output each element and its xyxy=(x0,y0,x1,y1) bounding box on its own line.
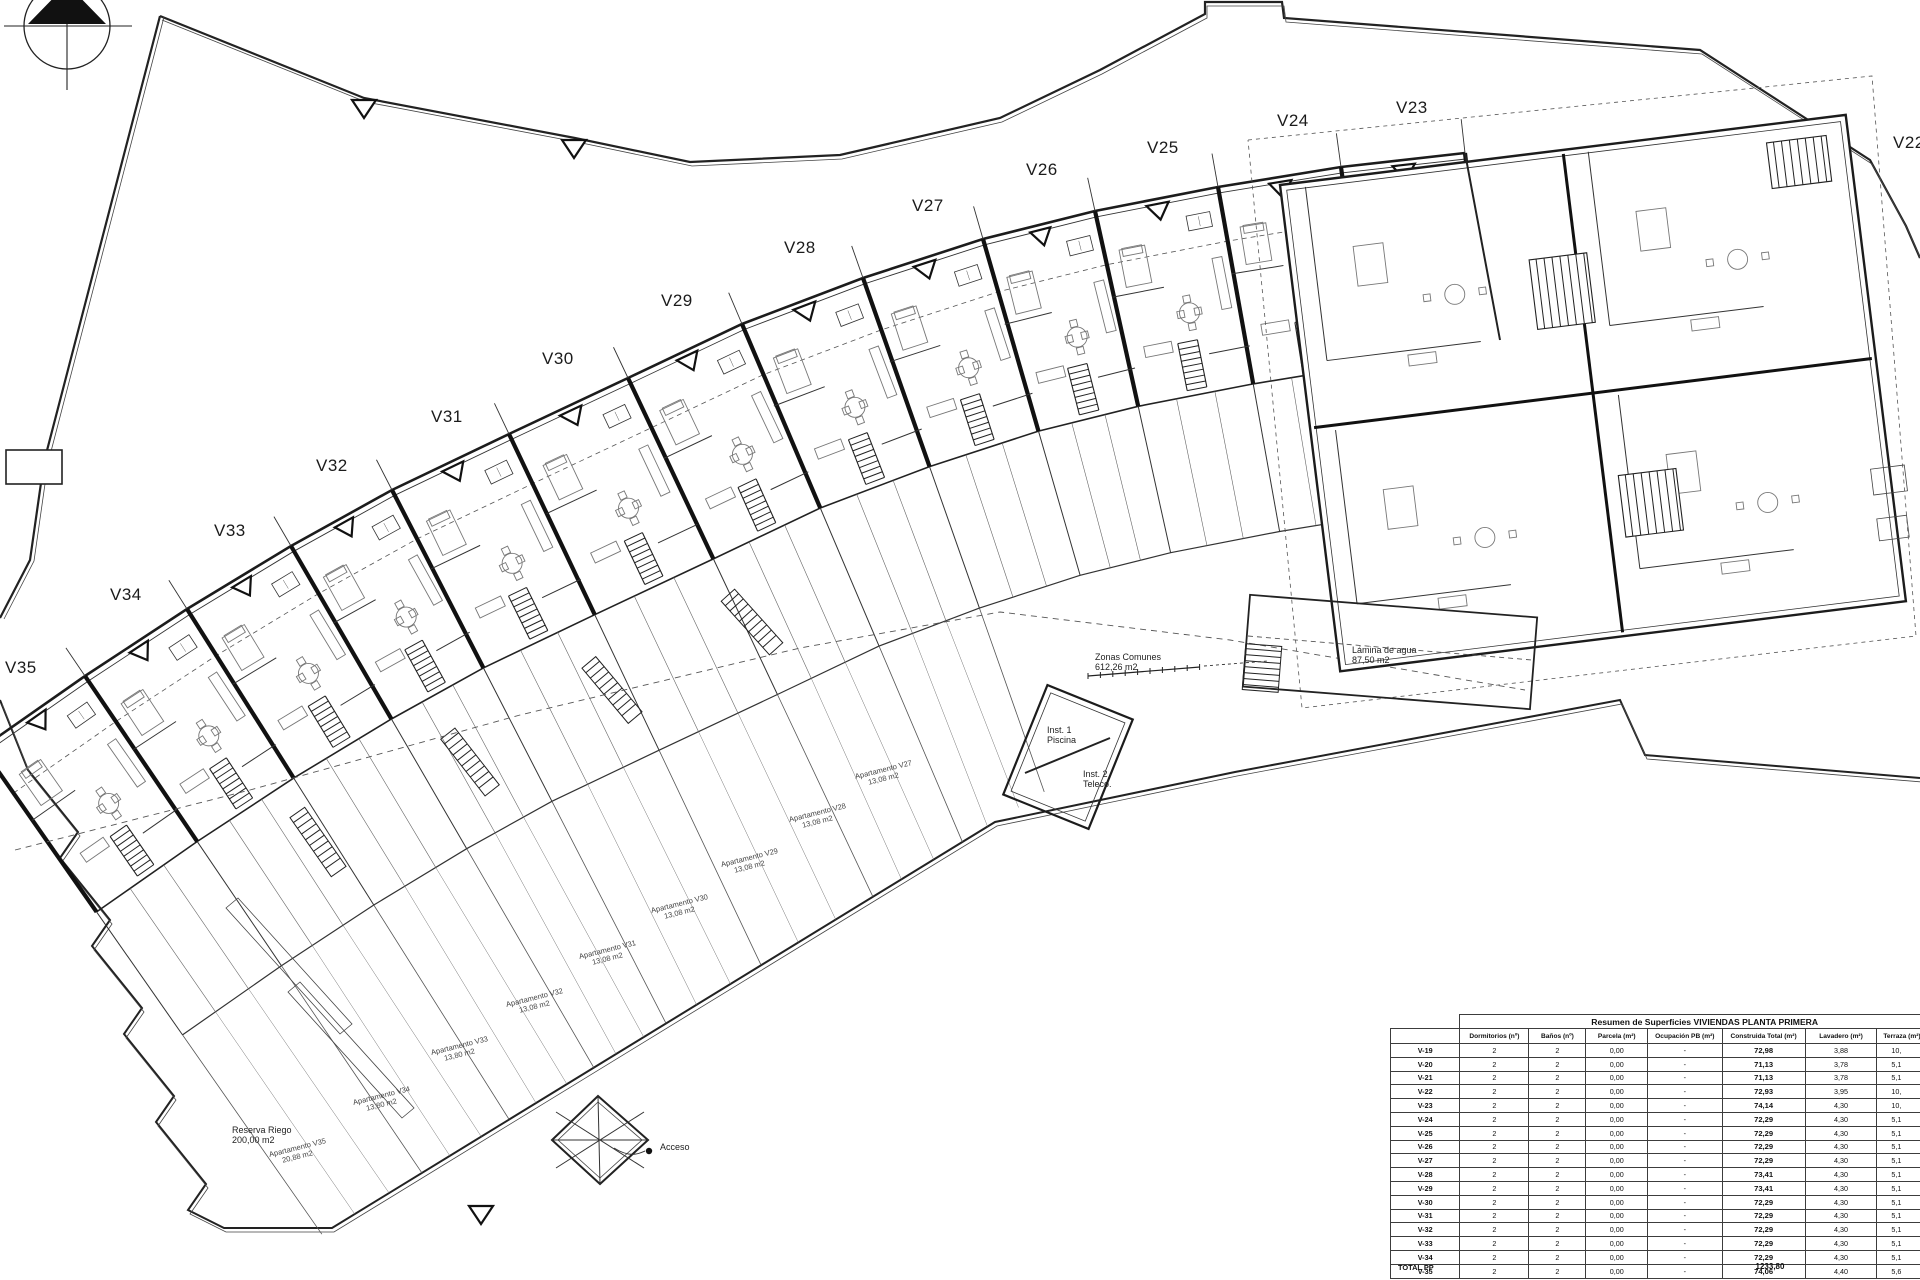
table-cell: 2 xyxy=(1460,1126,1529,1140)
table-cell: - xyxy=(1648,1264,1722,1278)
table-cell: 2 xyxy=(1529,1085,1586,1099)
table-cell: 4,30 xyxy=(1805,1250,1877,1264)
table-cell: - xyxy=(1648,1223,1722,1237)
table-cell: 0,00 xyxy=(1586,1264,1648,1278)
stairs-hatch xyxy=(1618,469,1683,538)
column-header: Baños (nº) xyxy=(1529,1029,1586,1044)
table-row: V-25220,00-72,294,305,1 xyxy=(1391,1126,1920,1140)
table-cell: - xyxy=(1648,1195,1722,1209)
column-header: Parcela (m²) xyxy=(1586,1029,1648,1044)
table-cell: 5,1 xyxy=(1877,1181,1920,1195)
table-cell: 2 xyxy=(1460,1112,1529,1126)
meter-boxes xyxy=(67,177,1456,728)
table-cell: - xyxy=(1648,1099,1722,1113)
table-cell: 2 xyxy=(1460,1250,1529,1264)
table-cell: 71,13 xyxy=(1722,1071,1805,1085)
pool-steps-hatch xyxy=(1242,644,1281,693)
facade-markers xyxy=(27,164,1415,730)
annotation-inst-1-piscina: Inst. 1 xyxy=(1047,725,1072,735)
table-cell: V-27 xyxy=(1391,1154,1460,1168)
table-cell: 3,78 xyxy=(1805,1071,1877,1085)
table-cell: 0,00 xyxy=(1586,1223,1648,1237)
table-cell: 10, xyxy=(1877,1085,1920,1099)
north-arrow xyxy=(28,0,106,24)
table-row: V-20220,00-71,133,785,1 xyxy=(1391,1057,1920,1071)
ramp-hatch xyxy=(721,589,783,655)
table-cell: V-31 xyxy=(1391,1209,1460,1223)
table-cell: - xyxy=(1648,1181,1722,1195)
access-marker xyxy=(552,1096,652,1184)
north-compass xyxy=(4,0,132,90)
table-cell: 5,1 xyxy=(1877,1195,1920,1209)
table-cell: 0,00 xyxy=(1586,1044,1648,1058)
stairs-hatch xyxy=(1767,136,1832,189)
table-cell: 72,93 xyxy=(1722,1085,1805,1099)
table-cell: 2 xyxy=(1460,1154,1529,1168)
table-cell: 4,30 xyxy=(1805,1099,1877,1113)
table-cell: 4,30 xyxy=(1805,1209,1877,1223)
table-cell: 4,30 xyxy=(1805,1181,1877,1195)
unit-band xyxy=(0,119,1504,1035)
column-header xyxy=(1391,1029,1460,1044)
table-cell: 2 xyxy=(1529,1237,1586,1251)
table-cell: 2 xyxy=(1529,1140,1586,1154)
unit-label: V31 xyxy=(431,407,463,426)
unit-label: V25 xyxy=(1147,138,1179,157)
table-cell: 2 xyxy=(1460,1195,1529,1209)
table-cell: 0,00 xyxy=(1586,1168,1648,1182)
table-cell: V-29 xyxy=(1391,1181,1460,1195)
table-cell: 0,00 xyxy=(1586,1057,1648,1071)
table-cell: - xyxy=(1648,1209,1722,1223)
table-cell: V-21 xyxy=(1391,1071,1460,1085)
table-row: V-30220,00-72,294,305,1 xyxy=(1391,1195,1920,1209)
table-cell: 5,1 xyxy=(1877,1126,1920,1140)
boundary-triangle-marker xyxy=(562,140,586,158)
unit-label: V24 xyxy=(1277,111,1309,130)
table-row: V-34220,00-72,294,305,1 xyxy=(1391,1250,1920,1264)
table-cell: 73,41 xyxy=(1722,1168,1805,1182)
table-row: V-33220,00-72,294,305,1 xyxy=(1391,1237,1920,1251)
table-cell: 0,00 xyxy=(1586,1195,1648,1209)
table-cell: 5,1 xyxy=(1877,1250,1920,1264)
table-cell: 2 xyxy=(1529,1195,1586,1209)
table-cell: V-23 xyxy=(1391,1099,1460,1113)
table-cell: 2 xyxy=(1460,1140,1529,1154)
annotation-inst-2-teleco: Teleco. xyxy=(1083,779,1112,789)
table-cell: 2 xyxy=(1529,1071,1586,1085)
table-cell: 2 xyxy=(1529,1044,1586,1058)
table-cell: V-30 xyxy=(1391,1195,1460,1209)
annotation-reserva-riego: 200,00 m2 xyxy=(232,1135,275,1145)
column-header: Dormitorios (nº) xyxy=(1460,1029,1529,1044)
total-value: 1233,80 xyxy=(1728,1262,1812,1271)
table-cell: V-22 xyxy=(1391,1085,1460,1099)
table-cell: 4,30 xyxy=(1805,1223,1877,1237)
table-cell: 4,30 xyxy=(1805,1154,1877,1168)
table-row: V-26220,00-72,294,305,1 xyxy=(1391,1140,1920,1154)
table-cell: 72,29 xyxy=(1722,1126,1805,1140)
unit-label: V22 xyxy=(1893,133,1920,152)
table-cell: 4,30 xyxy=(1805,1126,1877,1140)
column-header: Terraza (m²) xyxy=(1877,1029,1920,1044)
unit-label: V28 xyxy=(784,238,816,257)
table-cell: 2 xyxy=(1529,1099,1586,1113)
table-cell: 4,30 xyxy=(1805,1140,1877,1154)
table-cell: 0,00 xyxy=(1586,1209,1648,1223)
summary-table: Resumen de Superficies VIVIENDAS PLANTA … xyxy=(1390,1014,1920,1279)
table-row: V-28220,00-73,414,305,1 xyxy=(1391,1168,1920,1182)
ramp-hatch xyxy=(441,728,500,796)
table-cell: 4,40 xyxy=(1805,1264,1877,1278)
ramp-hatch xyxy=(290,807,346,876)
table-cell: 74,14 xyxy=(1722,1099,1805,1113)
table-cell: 2 xyxy=(1460,1168,1529,1182)
table-cell: 2 xyxy=(1529,1209,1586,1223)
table-cell: 72,29 xyxy=(1722,1154,1805,1168)
table-cell: 10, xyxy=(1877,1099,1920,1113)
entrance-triangle-marker xyxy=(914,260,936,279)
table-cell: 0,00 xyxy=(1586,1140,1648,1154)
dashed-lines xyxy=(15,612,1525,850)
table-cell: 4,30 xyxy=(1805,1237,1877,1251)
table-cell: 5,1 xyxy=(1877,1071,1920,1085)
table-cell: - xyxy=(1648,1112,1722,1126)
table-cell: 2 xyxy=(1460,1264,1529,1278)
ramp-hatch xyxy=(582,657,642,724)
table-cell: 72,29 xyxy=(1722,1195,1805,1209)
table-cell: 0,00 xyxy=(1586,1085,1648,1099)
table-cell: 4,30 xyxy=(1805,1168,1877,1182)
table-cell: 0,00 xyxy=(1586,1154,1648,1168)
unit-label: V26 xyxy=(1026,160,1058,179)
table-cell: 5,6 xyxy=(1877,1264,1920,1278)
table-cell: 2 xyxy=(1529,1154,1586,1168)
table-cell: 5,1 xyxy=(1877,1168,1920,1182)
annotation-lamina-de-agua: Lámina de agua xyxy=(1352,645,1417,655)
table-cell: 3,95 xyxy=(1805,1085,1877,1099)
column-header: Lavadero (m²) xyxy=(1805,1029,1877,1044)
table-cell: 72,29 xyxy=(1722,1209,1805,1223)
entrance-triangle-marker xyxy=(27,710,45,730)
table-cell: 71,13 xyxy=(1722,1057,1805,1071)
table-cell: V-26 xyxy=(1391,1140,1460,1154)
table-cell: 2 xyxy=(1529,1126,1586,1140)
table-cell: 2 xyxy=(1529,1181,1586,1195)
table-cell: 0,00 xyxy=(1586,1112,1648,1126)
retaining-wall xyxy=(226,898,352,1034)
table-cell: 5,1 xyxy=(1877,1223,1920,1237)
table-row: V-35220,00-74,064,405,6 xyxy=(1391,1264,1920,1278)
table-cell: - xyxy=(1648,1071,1722,1085)
table-cell: 2 xyxy=(1460,1057,1529,1071)
table-cell: 2 xyxy=(1460,1071,1529,1085)
table-cell: 72,29 xyxy=(1722,1223,1805,1237)
total-label: TOTAL PP xyxy=(1398,1263,1434,1272)
terrace-strips xyxy=(130,356,1466,1234)
table-cell: 73,41 xyxy=(1722,1181,1805,1195)
table-cell: V-25 xyxy=(1391,1126,1460,1140)
boundary-triangle-marker xyxy=(352,100,376,118)
table-cell: 0,00 xyxy=(1586,1126,1648,1140)
annotation-zonas-comunes: Zonas Comunes xyxy=(1095,652,1162,662)
unit-label: V32 xyxy=(316,456,348,475)
table-cell: 4,30 xyxy=(1805,1112,1877,1126)
table-cell: 72,29 xyxy=(1722,1237,1805,1251)
table-cell: V-33 xyxy=(1391,1237,1460,1251)
table-cell: 2 xyxy=(1460,1209,1529,1223)
table-title: Resumen de Superficies VIVIENDAS PLANTA … xyxy=(1460,1015,1920,1029)
table-cell: - xyxy=(1648,1250,1722,1264)
table-cell: V-24 xyxy=(1391,1112,1460,1126)
table-cell: 2 xyxy=(1529,1223,1586,1237)
table-cell: 2 xyxy=(1460,1181,1529,1195)
entrance-triangle-marker xyxy=(1146,202,1168,220)
table-cell: - xyxy=(1648,1154,1722,1168)
table-cell: 0,00 xyxy=(1586,1250,1648,1264)
table-cell: 2 xyxy=(1460,1237,1529,1251)
table-cell: V-20 xyxy=(1391,1057,1460,1071)
unit-stairs xyxy=(110,303,1439,876)
unit-label: V34 xyxy=(110,585,142,604)
annotation-inst-2-teleco: Inst. 2 xyxy=(1083,769,1108,779)
summary-table-wrap: Resumen de Superficies VIVIENDAS PLANTA … xyxy=(1390,1014,1920,1280)
table-cell: - xyxy=(1648,1044,1722,1058)
annotation-lamina-de-agua: 87,50 m2 xyxy=(1352,655,1390,665)
boundary-triangle-marker xyxy=(469,1206,493,1224)
detached-block xyxy=(1248,76,1916,708)
annotations: Zonas Comunes612,26 m2Lámina de agua87,5… xyxy=(232,645,1417,1152)
table-cell: - xyxy=(1648,1237,1722,1251)
table-cell: 3,88 xyxy=(1805,1044,1877,1058)
unit-label: V30 xyxy=(542,349,574,368)
column-header: Ocupación PB (m²) xyxy=(1648,1029,1722,1044)
unit-label: V35 xyxy=(5,658,37,677)
table-cell: 72,98 xyxy=(1722,1044,1805,1058)
unit-label: V29 xyxy=(661,291,693,310)
table-cell: - xyxy=(1648,1168,1722,1182)
table-cell: 2 xyxy=(1529,1264,1586,1278)
table-row: V-22220,00-72,933,9510, xyxy=(1391,1085,1920,1099)
table-cell: 2 xyxy=(1460,1223,1529,1237)
stairs-hatch xyxy=(1529,253,1595,330)
column-header: Construida Total (m²) xyxy=(1722,1029,1805,1044)
table-cell: - xyxy=(1648,1057,1722,1071)
table-cell: 5,1 xyxy=(1877,1112,1920,1126)
table-cell: - xyxy=(1648,1085,1722,1099)
table-cell: 2 xyxy=(1460,1085,1529,1099)
table-cell: 5,1 xyxy=(1877,1057,1920,1071)
table-cell: 0,00 xyxy=(1586,1181,1648,1195)
table-cell: 5,1 xyxy=(1877,1209,1920,1223)
table-cell: 3,78 xyxy=(1805,1057,1877,1071)
unit-label: V23 xyxy=(1396,98,1428,117)
unit-label: V27 xyxy=(912,196,944,215)
table-cell: 2 xyxy=(1529,1057,1586,1071)
table-row: V-27220,00-72,294,305,1 xyxy=(1391,1154,1920,1168)
annotation-acceso: Acceso xyxy=(660,1142,690,1152)
annotation-inst-1-piscina: Piscina xyxy=(1047,735,1076,745)
table-cell: V-32 xyxy=(1391,1223,1460,1237)
annotation-zonas-comunes: 612,26 m2 xyxy=(1095,662,1138,672)
table-cell: 0,00 xyxy=(1586,1099,1648,1113)
table-row: V-31220,00-72,294,305,1 xyxy=(1391,1209,1920,1223)
table-cell: - xyxy=(1648,1140,1722,1154)
table-row: V-32220,00-72,294,305,1 xyxy=(1391,1223,1920,1237)
table-cell: 2 xyxy=(1460,1044,1529,1058)
unit-partitions xyxy=(32,248,1485,833)
table-cell: - xyxy=(1648,1126,1722,1140)
table-cell: 72,29 xyxy=(1722,1140,1805,1154)
table-row: V-24220,00-72,294,305,1 xyxy=(1391,1112,1920,1126)
table-cell: V-28 xyxy=(1391,1168,1460,1182)
table-cell: 0,00 xyxy=(1586,1237,1648,1251)
table-cell: 0,00 xyxy=(1586,1071,1648,1085)
table-row: V-21220,00-71,133,785,1 xyxy=(1391,1071,1920,1085)
table-cell: 72,29 xyxy=(1722,1112,1805,1126)
unit-label: V33 xyxy=(214,521,246,540)
table-cell: 2 xyxy=(1529,1250,1586,1264)
table-cell: 5,1 xyxy=(1877,1154,1920,1168)
table-cell: 2 xyxy=(1460,1099,1529,1113)
table-cell: 5,1 xyxy=(1877,1140,1920,1154)
table-cell: 4,30 xyxy=(1805,1195,1877,1209)
annotation-reserva-riego: Reserva Riego xyxy=(232,1125,292,1135)
table-row: V-29220,00-73,414,305,1 xyxy=(1391,1181,1920,1195)
table-cell: V-19 xyxy=(1391,1044,1460,1058)
entrance-triangle-marker xyxy=(1030,227,1050,245)
table-cell: 2 xyxy=(1529,1112,1586,1126)
access-point-dot xyxy=(646,1148,652,1154)
table-row: V-19220,00-72,983,8810, xyxy=(1391,1044,1920,1058)
table-row: V-23220,00-74,144,3010, xyxy=(1391,1099,1920,1113)
table-cell: 2 xyxy=(1529,1168,1586,1182)
table-cell: 5,1 xyxy=(1877,1237,1920,1251)
table-cell: 10, xyxy=(1877,1044,1920,1058)
ramp-hatches xyxy=(226,589,783,1118)
